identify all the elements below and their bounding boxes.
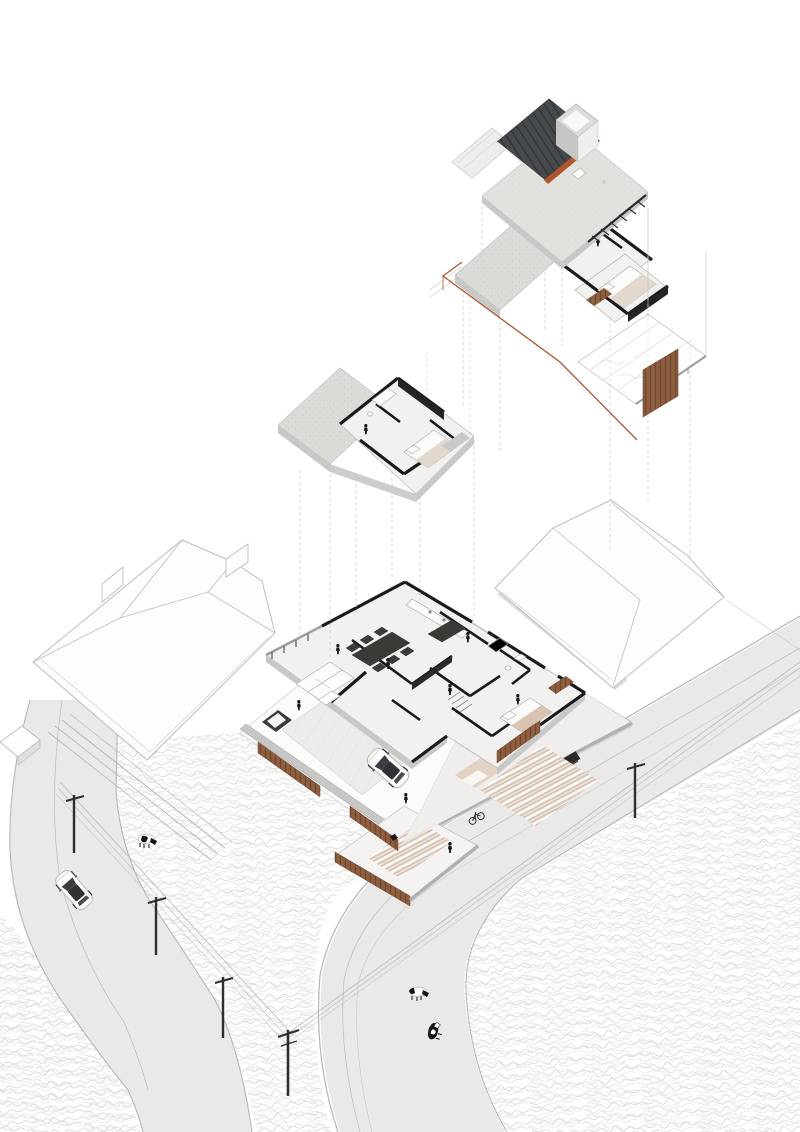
roof-vent xyxy=(602,180,606,184)
architectural-drawing xyxy=(0,0,800,1132)
